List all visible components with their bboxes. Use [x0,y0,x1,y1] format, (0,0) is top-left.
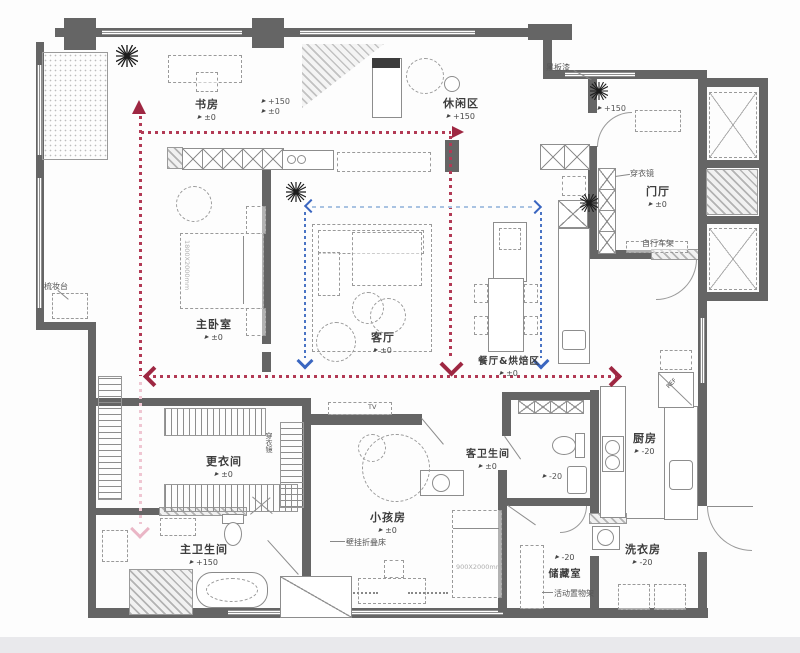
shower-door [507,505,535,525]
room-name: 休闲区 [443,97,479,110]
ceiling-projection [337,152,431,172]
room-label-closet: 更衣间 ±0 [206,450,242,479]
wall [590,390,599,516]
upper-cabinet [660,350,692,370]
path-red-horizontal [146,375,616,378]
door-arc [656,259,697,300]
floor-plan: 书房 ±0 休闲区 +150 门厅 ±0 主卧室 ±0 客厅 ±0 餐厅&烘焙区… [0,0,800,653]
room-name: 客厅 [371,331,395,344]
level-flag-icon [261,99,266,103]
cabinet-x [540,144,566,170]
annotation-closet-mirror: 穿衣镜 [264,432,274,453]
desk-chair [196,72,218,92]
wash-basin [567,466,587,494]
cabinet-x [598,189,616,212]
level-flag-icon [189,560,194,564]
window [700,318,705,383]
cabinet-x [202,148,224,170]
level-flag-icon [214,472,219,476]
bed-line [243,236,244,304]
toilet-tank [575,433,585,458]
wall-hatch [168,148,182,168]
wall [698,216,760,224]
arrow-right [452,126,464,138]
wall [698,552,707,618]
path-red-vertical [139,116,142,376]
level-flag-icon [555,555,560,559]
room-label-living: 客厅 ±0 [371,326,395,355]
washer-drum [597,529,614,546]
tv-cabinet [328,402,392,415]
level-marker: ±0 [478,369,540,378]
window [565,72,635,77]
wall [698,160,760,168]
kitchen-sink [669,460,693,490]
annotation-movable-shelf: 活动置物架 [554,588,594,599]
level-flag-icon [446,114,451,118]
path-blue-vertical [304,212,306,358]
closet-rack [280,422,304,508]
plant-icon [590,82,608,104]
step-level-marker: +150 [262,97,290,106]
room-name: 储藏室 [549,569,582,580]
wall [759,78,768,301]
lounge-chair [406,58,444,94]
cabinet-x [598,231,616,254]
door-arc [707,506,752,551]
bed-line [453,528,499,529]
kids-bed [452,510,502,598]
level-flag-icon [499,371,504,375]
level-marker: ±0 [370,526,406,535]
master-bed [180,233,264,309]
wall [88,326,96,616]
chair [474,316,488,335]
level-marker: -20 [633,447,657,456]
column [64,18,96,50]
kids-chair [384,560,404,578]
wall [302,414,422,425]
room-name: 洗衣房 [625,543,661,556]
elevator-shaft [709,92,757,158]
towel-rack [160,518,196,536]
room-label-storage: -20 储藏室 [549,552,582,581]
laundry-appliance [654,584,686,610]
cabinet-top [372,58,400,68]
level-marker: ±0 [195,113,219,122]
room-label-master-bedroom: 主卧室 ±0 [196,313,232,342]
step-level-marker: ±0 [262,107,280,116]
sofa-side [318,252,340,296]
level-marker: ±0 [371,346,395,355]
wall [502,392,511,436]
annotation-blackboard: 黑板漆 [546,62,570,73]
wall [498,498,594,506]
path-red-horizontal [141,131,451,134]
wall [96,398,302,406]
kids-desk [358,578,426,604]
basin-bowl [432,474,450,492]
plant-icon [580,194,598,216]
dimension-master-bed: 1800X2000mm [183,240,191,290]
closet-rack [164,484,298,512]
nightstand [246,308,266,336]
cabinet-x [182,148,204,170]
level-marker: -20 [625,558,661,567]
foyer-bench [635,110,681,132]
level-flag-icon [635,449,640,453]
cabinet-x [566,400,584,414]
door-leaf [707,506,753,507]
level-marker: ±0 [196,333,232,342]
room-label-laundry: 洗衣房 -20 [625,538,661,567]
chair [524,316,538,335]
arrow-right [601,366,622,387]
arrow-up [132,100,146,114]
side-table [444,76,460,92]
room-label-foyer: 门厅 ±0 [646,180,670,209]
sink-bowl [297,155,306,164]
bath-vanity [102,530,128,562]
shower-door [267,540,299,575]
path-pink-vertical [139,382,142,524]
ac-unit [562,176,586,196]
room-name: 书房 [195,98,219,111]
wall [698,292,768,301]
annotation-bike-rack: 自行车架 [642,238,674,249]
column [252,18,284,48]
cooktop [499,228,521,250]
level-marker: ±0 [206,470,242,479]
dimension-kids-bed: 900X2000mm [456,563,502,571]
plant-icon [116,45,138,71]
door-leaf [421,418,444,445]
wall [36,322,96,330]
window [228,610,503,615]
cabinet-x [242,148,264,170]
level-marker: +150 [180,558,228,567]
dining-table [488,278,524,352]
page-edge [0,637,800,653]
wet-level-marker: -20 [543,472,562,481]
leader-line [330,541,345,542]
chair [524,284,538,303]
level-flag-icon [204,335,209,339]
window [37,178,42,308]
wall [590,556,599,612]
room-name: 主卧室 [196,318,232,331]
armchair [176,186,212,222]
cabinet-x [598,168,616,191]
room-label-guest-bath: 客卫生间 ±0 [466,442,510,471]
level-marker: ±0 [646,200,670,209]
level-marker: ±0 [466,462,510,471]
sink-bowl [287,155,296,164]
room-name: 厨房 [633,432,657,445]
annotation-tv: TV [368,403,376,411]
level-flag-icon [478,464,483,468]
level-flag-icon [378,528,383,532]
floor-marking [408,592,448,594]
toilet-bowl [552,436,576,455]
room-name: 餐厅&烘焙区 [478,356,540,367]
arc-chair [316,322,356,362]
bathtub-inner [206,578,258,602]
room-label-master-bath: 主卫生间 +150 [180,538,228,567]
room-label-kids-room: 小孩房 ±0 [370,506,406,535]
window [300,30,475,35]
plant-icon [286,182,306,206]
corner-panel [280,576,352,618]
level-flag-icon [648,202,653,206]
door-arc [560,506,587,533]
arrow-left [143,366,164,387]
annotation-folding-bed: 壁挂折叠床 [346,537,386,548]
wall [698,78,768,87]
level-flag-icon [261,109,266,113]
sofa-seat [352,232,422,286]
step-level-marker: +150 [598,104,626,113]
movable-shelf-unit [520,545,544,609]
window-bench [42,52,108,160]
laundry-appliance [618,584,650,610]
wall [262,352,271,372]
level-marker: +150 [443,112,479,121]
room-name: 小孩房 [370,511,406,524]
wall [698,78,707,300]
level-flag-icon [373,348,378,352]
arrow-left [304,199,318,213]
leader-line [542,592,553,593]
closet-rack [164,408,266,436]
cabinet-x [262,148,284,170]
room-name: 客卫生间 [466,449,510,460]
burner [605,455,620,470]
room-name: 主卫生间 [180,543,228,556]
room-label-leisure: 休闲区 +150 [443,92,479,121]
level-flag-icon [542,474,547,478]
annotation-foyer-mirror: 穿衣镜 [630,168,654,179]
stone-sill [130,570,192,614]
room-name: 门厅 [646,185,670,198]
level-marker: -20 [549,553,582,562]
level-flag-icon [633,560,638,564]
arrow-down [439,352,463,376]
chair [474,284,488,303]
closet-rack [98,376,122,500]
path-blue-horizontal [312,206,534,208]
room-label-study: 书房 ±0 [195,93,219,122]
wall [445,140,459,172]
arrow-down [130,519,150,539]
cabinet-x [564,144,590,170]
path-blue-vertical [540,212,542,358]
pinwheel-rug [358,434,386,462]
leader-line [615,174,630,177]
room-label-dining: 餐厅&烘焙区 ±0 [478,349,540,378]
wall [510,392,598,400]
level-flag-icon [197,115,202,119]
path-red-vertical [449,136,452,360]
window [102,30,242,35]
room-name: 更衣间 [206,455,242,468]
vanity-table [52,293,88,319]
shaft-hatch [707,170,757,214]
elevator-shaft [709,228,757,290]
burner [605,440,620,455]
door-arc [597,112,632,147]
sink [562,330,586,350]
cabinet-x [222,148,244,170]
arrow-down [297,353,314,370]
level-flag-icon [597,106,602,110]
cabinet-x [598,210,616,233]
room-label-kitchen: 厨房 -20 [633,427,657,456]
nightstand [246,206,266,234]
